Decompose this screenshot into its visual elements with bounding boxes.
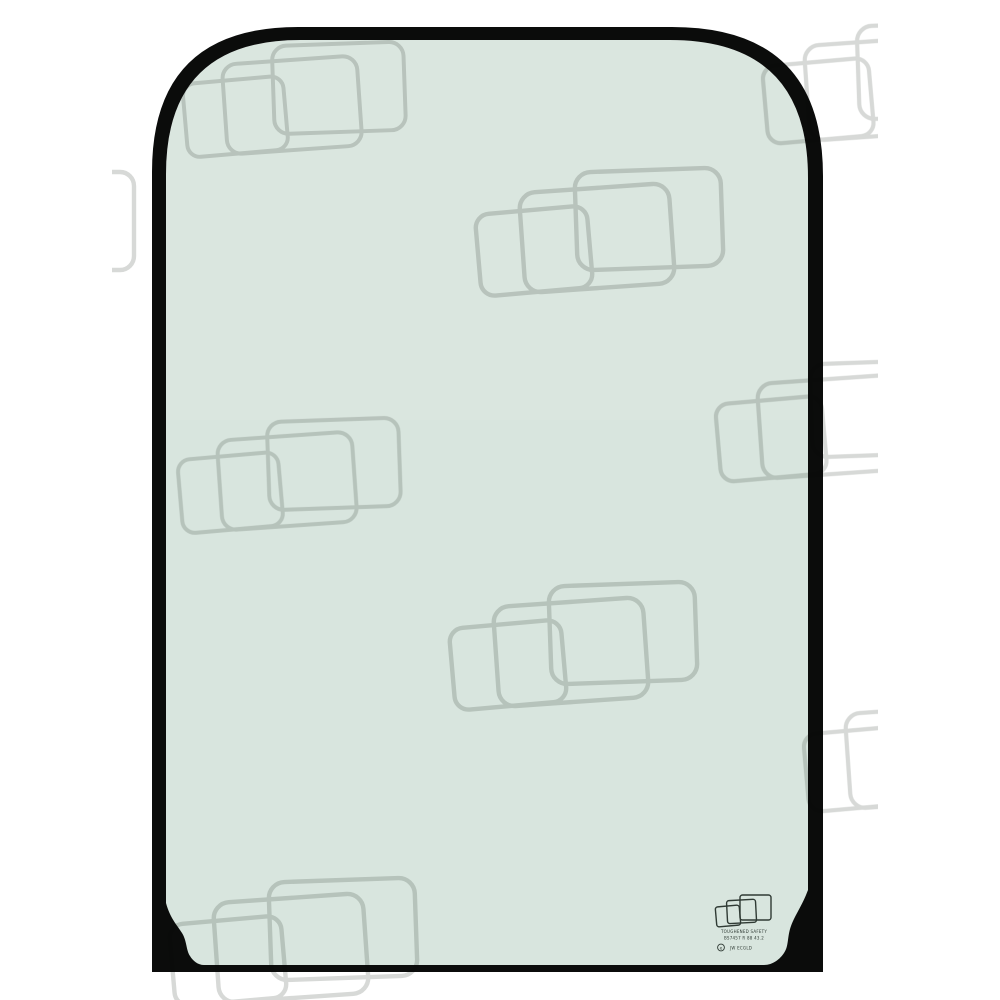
product-photo: TOUGHENED SAFETY BS7457 R 88 43.2 e JW E… xyxy=(0,0,1000,1000)
glass-sheen xyxy=(166,40,808,420)
stamp-line1: TOUGHENED SAFETY xyxy=(720,929,767,934)
stamp-line3: JW ECGLD xyxy=(729,945,752,950)
glass-photo-svg: TOUGHENED SAFETY BS7457 R 88 43.2 e JW E… xyxy=(0,0,1000,1000)
stamp-mark-letter: e xyxy=(720,946,723,951)
stamp-line2: BS7457 R 88 43.2 xyxy=(724,936,764,941)
